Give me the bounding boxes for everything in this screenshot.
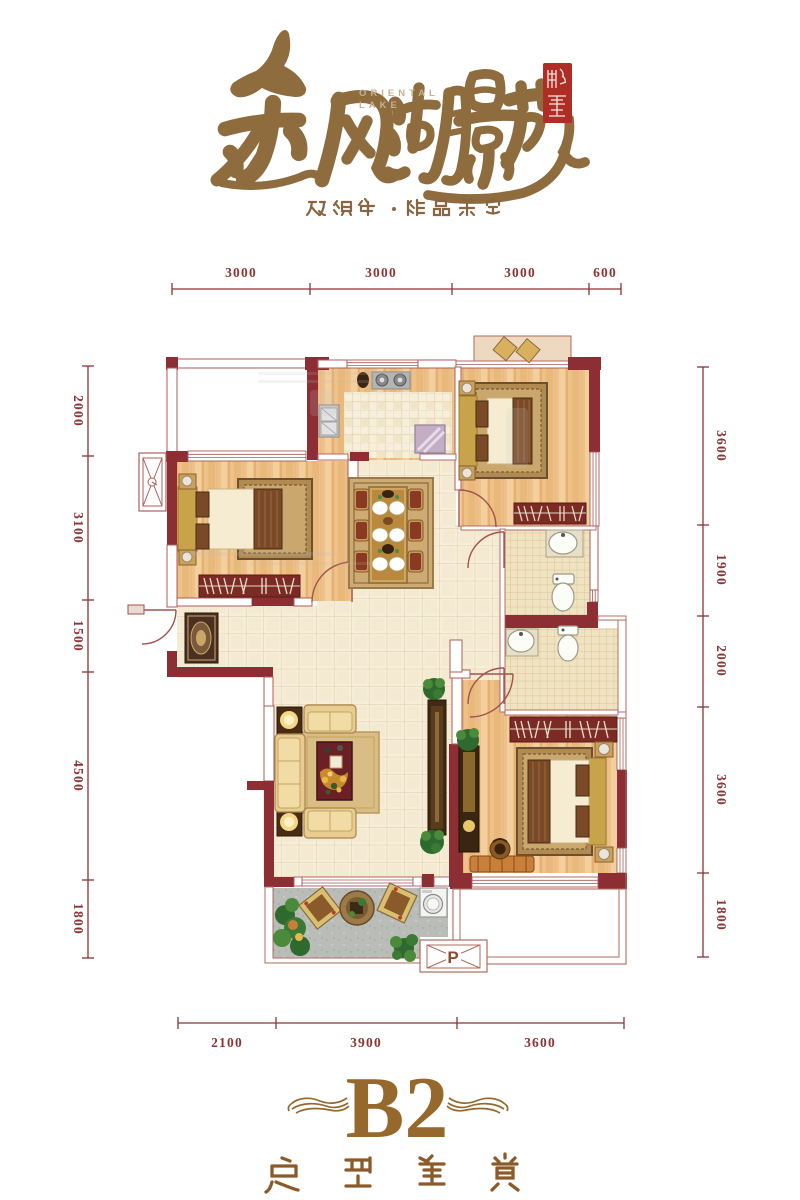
- svg-text:3900: 3900: [350, 1035, 382, 1050]
- svg-text:2100: 2100: [211, 1035, 243, 1050]
- svg-text:1900: 1900: [714, 554, 729, 586]
- svg-text:2000: 2000: [71, 395, 86, 427]
- svg-text:3000: 3000: [365, 265, 397, 280]
- svg-text:1500: 1500: [71, 620, 86, 652]
- svg-text:1800: 1800: [71, 903, 86, 935]
- svg-text:3600: 3600: [714, 430, 729, 462]
- svg-text:3000: 3000: [504, 265, 536, 280]
- svg-text:LAKE: LAKE: [359, 100, 401, 111]
- svg-text:B2: B2: [346, 1060, 449, 1157]
- svg-text:3100: 3100: [71, 512, 86, 544]
- svg-text:1800: 1800: [714, 899, 729, 931]
- svg-text:3000: 3000: [225, 265, 257, 280]
- svg-text:3600: 3600: [714, 774, 729, 806]
- svg-text:2000: 2000: [714, 645, 729, 677]
- svg-text:600: 600: [593, 265, 617, 280]
- svg-text:ORIENTAL: ORIENTAL: [359, 88, 439, 99]
- svg-text:4500: 4500: [71, 760, 86, 792]
- svg-text:P: P: [447, 948, 458, 967]
- svg-text:3600: 3600: [524, 1035, 556, 1050]
